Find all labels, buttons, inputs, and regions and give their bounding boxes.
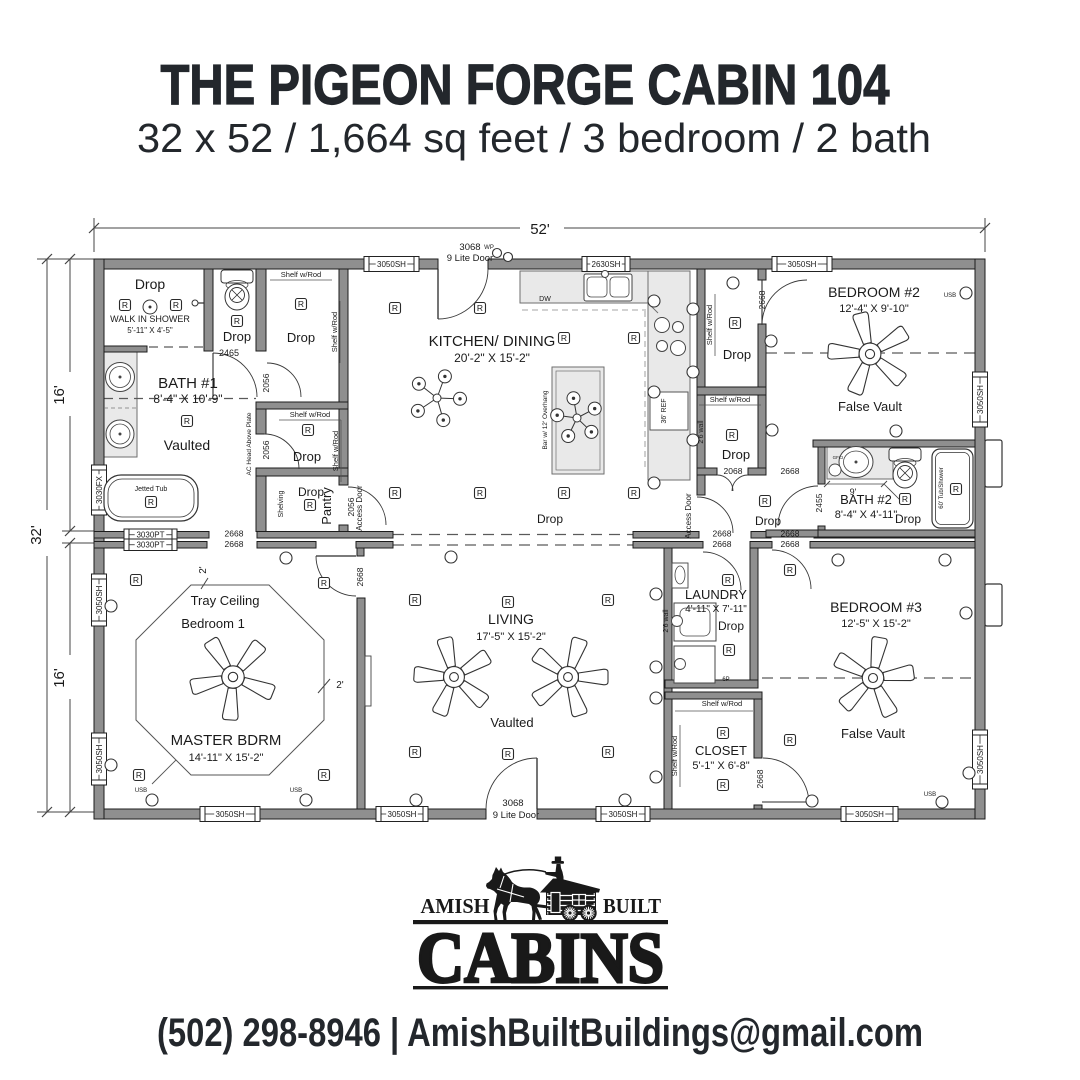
svg-text:2630SH: 2630SH: [592, 260, 621, 269]
svg-text:Drop: Drop: [723, 347, 751, 362]
svg-text:2668: 2668: [713, 539, 732, 549]
svg-text:Jetted Tub: Jetted Tub: [135, 486, 168, 493]
svg-text:R: R: [605, 595, 611, 605]
svg-text:Shelf w/Rod: Shelf w/Rod: [705, 305, 714, 345]
svg-text:3030PT: 3030PT: [136, 531, 164, 540]
svg-text:60' Tub/Shower: 60' Tub/Shower: [939, 467, 945, 509]
svg-text:LIVING: LIVING: [488, 611, 534, 627]
svg-text:Shelf w/Rod: Shelf w/Rod: [702, 699, 742, 708]
svg-text:Shelf w/Rod: Shelf w/Rod: [331, 431, 340, 471]
svg-text:R: R: [148, 497, 154, 507]
svg-text:LAUNDRY: LAUNDRY: [685, 587, 747, 602]
svg-text:KITCHEN/ DINING: KITCHEN/ DINING: [429, 333, 556, 350]
svg-text:R: R: [561, 333, 567, 343]
svg-text:32 x 52 / 1,664 sq feet / 3 be: 32 x 52 / 1,664 sq feet / 3 bedroom / 2 …: [137, 115, 931, 161]
svg-text:3050SH: 3050SH: [95, 585, 104, 614]
svg-text:R: R: [412, 595, 418, 605]
svg-text:2668: 2668: [781, 539, 800, 549]
svg-text:32': 32': [28, 525, 45, 545]
svg-text:2668: 2668: [781, 529, 800, 539]
svg-text:R: R: [787, 735, 793, 745]
svg-text:Vaulted: Vaulted: [490, 715, 533, 730]
svg-text:2465: 2465: [219, 348, 239, 358]
svg-text:Shelf w/Rod: Shelf w/Rod: [330, 312, 339, 352]
svg-text:R: R: [725, 575, 731, 585]
svg-text:3068: 3068: [459, 242, 480, 253]
svg-text:Access Door: Access Door: [355, 485, 364, 531]
svg-text:R: R: [732, 318, 738, 328]
svg-text:52': 52': [530, 221, 550, 238]
svg-text:20'-2" X 15'-2": 20'-2" X 15'-2": [454, 351, 530, 365]
svg-text:Drop: Drop: [895, 512, 921, 526]
svg-text:R: R: [505, 597, 511, 607]
svg-text:R: R: [184, 416, 190, 426]
svg-text:Drop: Drop: [755, 514, 781, 528]
svg-text:Drop: Drop: [293, 449, 321, 464]
svg-text:3050SH: 3050SH: [855, 810, 884, 819]
svg-text:THE PIGEON FORGE CABIN 104: THE PIGEON FORGE CABIN 104: [161, 53, 890, 117]
svg-text:2056: 2056: [261, 373, 271, 392]
svg-text:R: R: [298, 299, 304, 309]
svg-text:16': 16': [51, 385, 68, 405]
svg-text:R: R: [505, 749, 511, 759]
svg-text:3050SH: 3050SH: [377, 260, 406, 269]
svg-text:USB: USB: [924, 792, 936, 798]
svg-text:3050SH: 3050SH: [788, 260, 817, 269]
svg-text:DW: DW: [539, 296, 551, 303]
svg-text:2668: 2668: [713, 529, 732, 539]
svg-text:2668: 2668: [755, 769, 765, 788]
svg-text:R: R: [305, 425, 311, 435]
svg-text:Pantry: Pantry: [319, 487, 334, 525]
svg-text:BEDROOM #2: BEDROOM #2: [828, 284, 920, 300]
svg-text:R: R: [321, 578, 327, 588]
svg-text:2068: 2068: [724, 466, 743, 476]
svg-text:8'-4" X 4'-11": 8'-4" X 4'-11": [835, 509, 898, 521]
svg-text:3050SH: 3050SH: [388, 810, 417, 819]
svg-text:R: R: [307, 500, 313, 510]
svg-text:Drop: Drop: [718, 619, 744, 633]
svg-text:R: R: [729, 430, 735, 440]
svg-text:R: R: [477, 303, 483, 313]
svg-text:R: R: [561, 488, 567, 498]
svg-text:2668: 2668: [355, 567, 365, 586]
svg-text:False Vault: False Vault: [838, 399, 902, 414]
svg-text:R: R: [762, 496, 768, 506]
svg-text:Shelf w/Rod: Shelf w/Rod: [281, 270, 321, 279]
svg-text:USB: USB: [290, 788, 302, 794]
svg-text:R: R: [477, 488, 483, 498]
svg-text:16': 16': [51, 668, 68, 688]
svg-text:3050SH: 3050SH: [976, 385, 985, 414]
svg-text:2056: 2056: [261, 440, 271, 459]
svg-text:R: R: [412, 747, 418, 757]
svg-text:3050SH: 3050SH: [216, 810, 245, 819]
svg-text:Drop: Drop: [135, 276, 166, 292]
svg-text:R: R: [787, 565, 793, 575]
svg-text:R: R: [122, 300, 128, 310]
svg-text:AMISH: AMISH: [421, 894, 490, 918]
svg-text:USB: USB: [135, 788, 147, 794]
svg-text:2668: 2668: [757, 290, 767, 309]
svg-text:Tray Ceiling: Tray Ceiling: [191, 593, 260, 608]
svg-text:R: R: [902, 494, 908, 504]
svg-text:Vaulted: Vaulted: [164, 437, 210, 453]
svg-text:MASTER BDRM: MASTER BDRM: [171, 732, 282, 749]
svg-text:Shelving: Shelving: [278, 490, 285, 517]
svg-text:USB: USB: [944, 293, 956, 299]
svg-text:4'-11" X 7'-11": 4'-11" X 7'-11": [685, 604, 747, 615]
svg-text:2668: 2668: [225, 529, 244, 539]
svg-text:36' REF: 36' REF: [661, 398, 668, 423]
svg-text:GFCI: GFCI: [833, 455, 844, 460]
svg-text:BUILT: BUILT: [603, 894, 661, 918]
svg-text:R: R: [136, 770, 142, 780]
svg-text:3050SH: 3050SH: [609, 810, 638, 819]
svg-text:WALK IN SHOWER: WALK IN SHOWER: [110, 314, 190, 324]
svg-text:R: R: [321, 770, 327, 780]
svg-text:12'-5" X 15'-2": 12'-5" X 15'-2": [841, 618, 911, 630]
svg-text:Access Door: Access Door: [684, 493, 693, 539]
svg-text:R: R: [631, 488, 637, 498]
svg-text:2': 2': [336, 680, 344, 691]
svg-text:5'-1" X 6'-8": 5'-1" X 6'-8": [692, 760, 749, 772]
svg-text:R: R: [720, 780, 726, 790]
svg-text:Shelf w/Rod: Shelf w/Rod: [670, 736, 679, 776]
svg-text:14'-11" X 15'-2": 14'-11" X 15'-2": [189, 752, 264, 764]
svg-text:BATH #1: BATH #1: [158, 375, 218, 392]
svg-text:BATH #2: BATH #2: [840, 492, 892, 507]
svg-text:Bar w/ 12' Overhang: Bar w/ 12' Overhang: [542, 390, 549, 449]
svg-text:2'6 wall: 2'6 wall: [698, 420, 705, 444]
svg-text:R: R: [631, 333, 637, 343]
svg-text:R: R: [173, 300, 179, 310]
svg-text:9 Lite Door: 9 Lite Door: [493, 810, 539, 821]
svg-text:3050SH: 3050SH: [95, 744, 104, 773]
svg-text:CLOSET: CLOSET: [695, 743, 747, 758]
svg-text:R: R: [605, 747, 611, 757]
svg-text:12'-4" X 9'-10": 12'-4" X 9'-10": [839, 303, 909, 315]
svg-text:WP: WP: [484, 245, 494, 251]
svg-text:Drop: Drop: [722, 447, 750, 462]
svg-text:3068: 3068: [502, 798, 523, 809]
svg-text:Drop: Drop: [223, 329, 251, 344]
svg-text:2455: 2455: [814, 493, 824, 512]
svg-text:R: R: [392, 488, 398, 498]
svg-text:Drop: Drop: [287, 330, 315, 345]
svg-text:2'6 wall: 2'6 wall: [663, 609, 670, 633]
svg-text:3030FX: 3030FX: [95, 475, 104, 504]
svg-text:2': 2': [198, 566, 209, 574]
svg-text:6P: 6P: [722, 677, 729, 683]
svg-text:5'-11" X 4'-5": 5'-11" X 4'-5": [127, 326, 173, 335]
svg-text:Bedroom 1: Bedroom 1: [181, 616, 245, 631]
svg-text:R: R: [726, 645, 732, 655]
svg-text:8'-4" X 10'-9": 8'-4" X 10'-9": [153, 392, 222, 406]
svg-text:2668: 2668: [781, 466, 800, 476]
svg-text:False Vault: False Vault: [841, 726, 905, 741]
svg-text:AC Head Above Plate: AC Head Above Plate: [246, 412, 253, 475]
svg-text:Drop: Drop: [537, 512, 563, 526]
svg-text:R: R: [392, 303, 398, 313]
svg-text:2668: 2668: [225, 539, 244, 549]
svg-text:9 Lite Door: 9 Lite Door: [447, 253, 493, 264]
svg-text:17'-5" X 15'-2": 17'-5" X 15'-2": [476, 631, 546, 643]
svg-text:R: R: [234, 316, 240, 326]
svg-text:3030PT: 3030PT: [136, 541, 164, 550]
svg-text:Shelf w/Rod: Shelf w/Rod: [290, 410, 330, 419]
svg-text:Shelf w/Rod: Shelf w/Rod: [710, 395, 750, 404]
svg-text:(502) 298-8946 | AmishBuiltBui: (502) 298-8946 | AmishBuiltBuildings@gma…: [157, 1011, 923, 1055]
svg-text:R: R: [720, 728, 726, 738]
svg-text:3050SH: 3050SH: [976, 745, 985, 774]
svg-text:CABINS: CABINS: [417, 918, 664, 998]
svg-text:BEDROOM #3: BEDROOM #3: [830, 599, 922, 615]
svg-text:R: R: [133, 575, 139, 585]
svg-text:R: R: [953, 484, 959, 494]
